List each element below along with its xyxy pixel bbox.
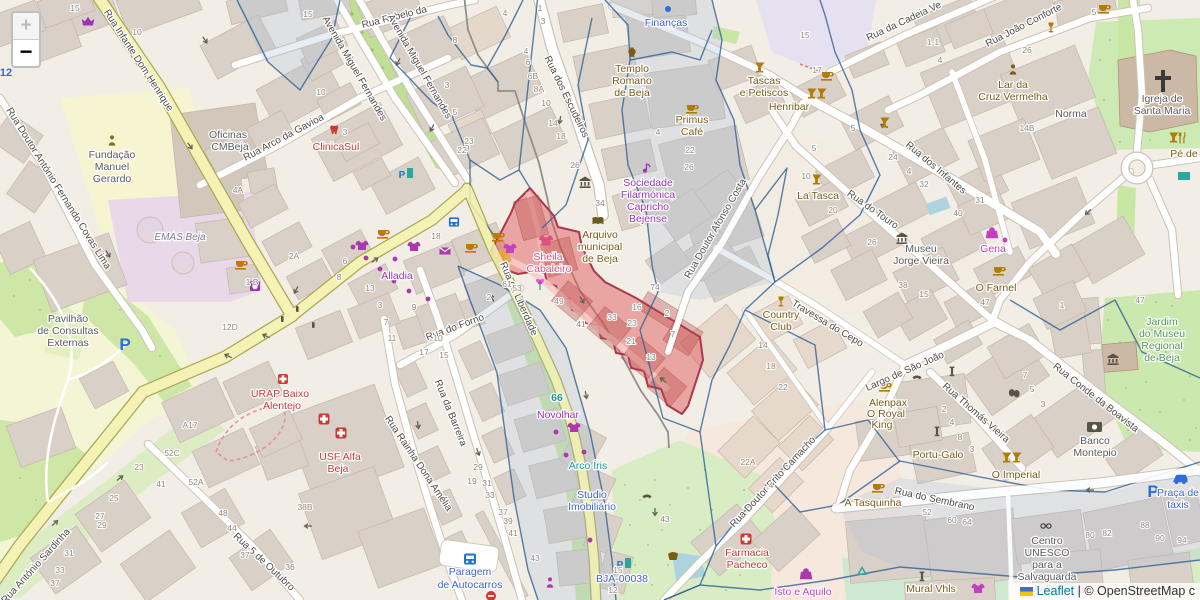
svg-text:39: 39 — [503, 516, 513, 526]
svg-text:12: 12 — [0, 67, 12, 79]
svg-text:CMBeja: CMBeja — [211, 141, 249, 153]
svg-text:Novolhar: Novolhar — [537, 409, 580, 421]
svg-text:Praça de: Praça de — [1157, 487, 1199, 499]
svg-text:6B: 6B — [528, 71, 539, 81]
svg-text:29: 29 — [97, 520, 107, 530]
svg-text:Primus: Primus — [676, 114, 709, 126]
svg-text:31: 31 — [64, 548, 74, 558]
svg-text:74: 74 — [650, 282, 660, 292]
svg-text:taxis: taxis — [1167, 499, 1189, 511]
svg-text:5: 5 — [812, 143, 817, 153]
svg-text:37: 37 — [240, 550, 250, 560]
svg-text:7: 7 — [671, 329, 676, 339]
svg-text:22: 22 — [457, 145, 467, 155]
svg-text:Jardim: Jardim — [1146, 316, 1178, 328]
svg-text:29: 29 — [473, 462, 483, 472]
svg-text:26: 26 — [570, 160, 580, 170]
svg-text:26: 26 — [867, 237, 877, 247]
svg-text:Fundação: Fundação — [89, 149, 136, 161]
svg-text:52: 52 — [922, 507, 932, 517]
svg-text:33: 33 — [55, 565, 65, 575]
svg-text:14: 14 — [758, 340, 768, 350]
svg-text:8: 8 — [337, 272, 342, 282]
svg-text:Regional: Regional — [1141, 340, 1182, 352]
svg-text:Arco Íris: Arco Íris — [569, 459, 608, 472]
svg-text:53: 53 — [512, 283, 522, 293]
svg-text:Imobiliário: Imobiliário — [568, 501, 616, 513]
svg-text:de Beja: de Beja — [614, 87, 650, 99]
svg-text:Café: Café — [681, 126, 703, 138]
svg-text:Beja: Beja — [327, 463, 348, 475]
svg-text:Farmacia: Farmacia — [725, 547, 769, 559]
svg-text:16: 16 — [632, 302, 642, 312]
svg-text:41: 41 — [576, 319, 586, 329]
svg-text:de Beja: de Beja — [1144, 352, 1180, 364]
svg-text:Salvaguarda: Salvaguarda — [1018, 571, 1077, 583]
svg-text:Santa Maria: Santa Maria — [1134, 105, 1191, 117]
svg-text:Tascas: Tascas — [748, 75, 781, 87]
svg-text:P: P — [399, 170, 406, 181]
svg-text:King: King — [871, 419, 892, 431]
svg-text:Lar da: Lar da — [998, 79, 1028, 91]
svg-text:Finanças: Finanças — [645, 17, 688, 29]
svg-text:Templo: Templo — [615, 63, 649, 75]
svg-text:Filarmónica: Filarmónica — [621, 189, 675, 201]
svg-text:EMAS Beja: EMAS Beja — [154, 232, 206, 243]
svg-text:14: 14 — [548, 118, 558, 128]
svg-text:47: 47 — [1135, 295, 1145, 305]
svg-text:49: 49 — [554, 296, 564, 306]
svg-text:94: 94 — [1177, 535, 1187, 545]
svg-text:7: 7 — [384, 317, 389, 327]
svg-text:Sociedade: Sociedade — [623, 177, 673, 189]
svg-text:15: 15 — [439, 350, 449, 360]
svg-text:de Beja: de Beja — [582, 253, 618, 265]
svg-text:5: 5 — [851, 123, 856, 133]
svg-text:Romano: Romano — [612, 75, 652, 87]
svg-text:15: 15 — [919, 289, 929, 299]
svg-text:3: 3 — [445, 80, 450, 90]
svg-text:8: 8 — [453, 35, 458, 45]
svg-text:20: 20 — [828, 205, 838, 215]
svg-text:Bejense: Bejense — [629, 213, 667, 225]
svg-text:23: 23 — [134, 462, 144, 472]
svg-text:4: 4 — [769, 480, 774, 490]
svg-text:Mural Vhls: Mural Vhls — [906, 583, 956, 595]
svg-text:18: 18 — [556, 131, 566, 141]
svg-text:Club: Club — [770, 321, 792, 333]
svg-text:2: 2 — [942, 404, 947, 414]
svg-text:Isto e Aquilo: Isto e Aquilo — [774, 586, 831, 598]
svg-text:17: 17 — [812, 65, 822, 75]
svg-text:Alentejo: Alentejo — [263, 400, 301, 412]
svg-text:Sheila: Sheila — [533, 251, 562, 263]
svg-text:Externas: Externas — [47, 337, 88, 349]
svg-text:Banco: Banco — [1080, 435, 1110, 447]
svg-text:15: 15 — [800, 30, 810, 40]
svg-text:4: 4 — [938, 55, 943, 65]
svg-text:12D: 12D — [222, 322, 238, 332]
svg-text:Pacheco: Pacheco — [727, 559, 768, 571]
svg-text:23: 23 — [627, 318, 637, 328]
svg-text:10: 10 — [801, 171, 811, 181]
svg-text:8: 8 — [958, 432, 963, 442]
svg-text:13: 13 — [646, 352, 656, 362]
svg-text:8A: 8A — [534, 84, 545, 94]
svg-text:do Museu: do Museu — [1139, 328, 1185, 340]
svg-text:41: 41 — [156, 479, 166, 489]
svg-text:A17: A17 — [182, 420, 197, 430]
svg-text:64: 64 — [962, 517, 972, 527]
svg-text:82: 82 — [1102, 528, 1112, 538]
svg-text:19: 19 — [467, 476, 477, 486]
svg-text:Arquivo: Arquivo — [582, 229, 618, 241]
svg-text:22: 22 — [778, 382, 788, 392]
svg-text:6: 6 — [343, 256, 348, 266]
svg-text:15: 15 — [613, 565, 623, 575]
svg-text:para a: para a — [1032, 559, 1062, 571]
svg-text:33: 33 — [607, 312, 617, 322]
svg-text:22A: 22A — [740, 457, 755, 467]
svg-text:5: 5 — [453, 107, 458, 117]
svg-text:Oficinas: Oficinas — [209, 129, 247, 141]
svg-text:26: 26 — [1022, 45, 1032, 55]
svg-text:municipal: municipal — [578, 241, 622, 253]
svg-text:34: 34 — [595, 198, 605, 208]
svg-text:Gerardo: Gerardo — [93, 173, 132, 185]
svg-text:31: 31 — [482, 478, 492, 488]
svg-text:25: 25 — [109, 493, 119, 503]
svg-text:1: 1 — [538, 3, 543, 13]
svg-text:Jorge Vieira: Jorge Vieira — [893, 255, 949, 267]
svg-text:80: 80 — [1085, 530, 1095, 540]
svg-text:24: 24 — [888, 152, 898, 162]
svg-text:48: 48 — [218, 508, 228, 518]
svg-text:36: 36 — [285, 562, 295, 572]
svg-text:Museu: Museu — [905, 243, 937, 255]
svg-text:La Tasca: La Tasca — [797, 190, 839, 202]
svg-text:2: 2 — [665, 308, 670, 318]
svg-text:10: 10 — [541, 98, 551, 108]
svg-text:44: 44 — [227, 523, 237, 533]
svg-text:URAP Baixo: URAP Baixo — [251, 388, 309, 400]
svg-text:4: 4 — [503, 8, 508, 18]
svg-text:43: 43 — [660, 514, 670, 524]
svg-text:10: 10 — [132, 27, 142, 37]
svg-text:11: 11 — [388, 333, 397, 343]
svg-text:de Consultas: de Consultas — [37, 325, 98, 337]
svg-text:47: 47 — [980, 297, 990, 307]
svg-text:4: 4 — [656, 127, 661, 137]
svg-text:38B: 38B — [297, 502, 312, 512]
svg-text:Studio: Studio — [577, 489, 607, 501]
svg-text:14B: 14B — [1019, 123, 1034, 133]
svg-text:O Farnel: O Farnel — [976, 282, 1017, 294]
svg-text:Alladia: Alladia — [381, 270, 413, 282]
svg-text:66: 66 — [551, 392, 563, 404]
svg-text:Portu-Galo: Portu-Galo — [913, 449, 964, 461]
svg-text:15: 15 — [303, 9, 313, 19]
svg-text:32: 32 — [919, 179, 929, 189]
svg-text:60: 60 — [947, 515, 957, 525]
svg-text:Manuel: Manuel — [95, 161, 129, 173]
svg-text:43: 43 — [530, 553, 540, 563]
svg-text:Cruz Vermelha: Cruz Vermelha — [978, 91, 1048, 103]
svg-text:A Tasquinha: A Tasquinha — [844, 497, 901, 509]
svg-text:13: 13 — [365, 283, 375, 293]
svg-text:6: 6 — [526, 57, 531, 67]
svg-text:2: 2 — [487, 292, 492, 302]
svg-text:22: 22 — [685, 145, 695, 155]
svg-text:1 B: 1 B — [246, 277, 259, 287]
svg-text:e Petiscos: e Petiscos — [740, 87, 788, 99]
svg-text:de Autocarros: de Autocarros — [438, 579, 503, 591]
svg-text:Pé de: Pé de — [1170, 148, 1198, 160]
svg-text:3: 3 — [970, 444, 975, 454]
svg-text:15: 15 — [70, 3, 80, 13]
svg-text:Cabaleiro: Cabaleiro — [527, 263, 572, 275]
svg-text:90: 90 — [1155, 533, 1165, 543]
svg-text:21: 21 — [626, 336, 636, 346]
svg-text:18: 18 — [766, 361, 776, 371]
svg-text:7: 7 — [1023, 370, 1028, 380]
svg-text:Paragem: Paragem — [449, 566, 492, 578]
svg-text:P: P — [119, 335, 130, 354]
svg-text:52C: 52C — [164, 448, 180, 458]
svg-text:37: 37 — [50, 578, 60, 588]
svg-text:Henribar: Henribar — [769, 101, 810, 113]
svg-text:4: 4 — [950, 417, 955, 427]
svg-text:Gena: Gena — [980, 243, 1006, 255]
svg-text:Country: Country — [763, 309, 801, 321]
svg-text:O Imperial: O Imperial — [992, 469, 1040, 481]
svg-text:10: 10 — [316, 87, 326, 97]
svg-text:5: 5 — [1092, 7, 1097, 17]
svg-text:3: 3 — [541, 16, 546, 26]
svg-text:Capricho: Capricho — [627, 201, 669, 213]
svg-text:5: 5 — [1030, 384, 1035, 394]
svg-text:Norma: Norma — [1055, 108, 1087, 120]
svg-text:1: 1 — [1060, 300, 1065, 310]
svg-text:41: 41 — [508, 528, 518, 538]
svg-text:UNESCO: UNESCO — [1025, 547, 1070, 559]
svg-text:12: 12 — [608, 585, 618, 595]
svg-text:3: 3 — [378, 300, 383, 310]
svg-text:17: 17 — [419, 347, 429, 357]
svg-text:ClinicaSul: ClinicaSul — [313, 141, 360, 153]
svg-text:61: 61 — [502, 279, 512, 289]
svg-text:USF Alfa: USF Alfa — [319, 451, 361, 463]
svg-text:38: 38 — [898, 280, 908, 290]
svg-text:4: 4 — [907, 166, 912, 176]
svg-text:31: 31 — [975, 195, 985, 205]
svg-text:40: 40 — [953, 208, 963, 218]
svg-text:Pavilhão: Pavilhão — [48, 313, 88, 325]
svg-text:88: 88 — [1140, 520, 1150, 530]
svg-text:Centro: Centro — [1031, 535, 1063, 547]
svg-text:18: 18 — [431, 231, 441, 241]
svg-text:9: 9 — [412, 302, 417, 312]
svg-text:4A: 4A — [233, 185, 244, 195]
svg-text:Igreja de: Igreja de — [1142, 93, 1183, 105]
svg-text:Montepio: Montepio — [1073, 447, 1116, 459]
svg-text:2A: 2A — [289, 251, 300, 261]
svg-text:3: 3 — [343, 127, 348, 137]
svg-text:26: 26 — [684, 162, 694, 172]
svg-text:3: 3 — [1041, 399, 1046, 409]
svg-text:10: 10 — [433, 333, 443, 343]
svg-text:1-1: 1-1 — [927, 37, 940, 47]
svg-text:4: 4 — [524, 46, 529, 56]
svg-text:33: 33 — [485, 490, 495, 500]
svg-text:52A: 52A — [188, 477, 203, 487]
